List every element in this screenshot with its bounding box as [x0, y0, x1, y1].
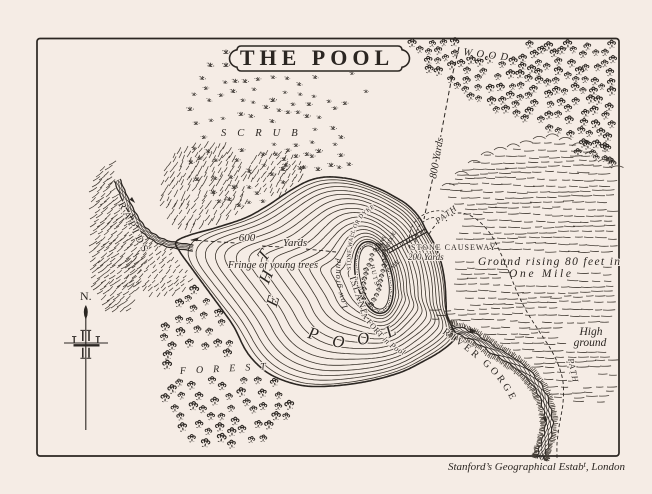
- svg-text:SCRUB: SCRUB: [221, 128, 309, 139]
- svg-text:Fringe of young trees: Fringe of young trees: [227, 260, 318, 271]
- svg-text:THE POOL: THE POOL: [240, 45, 394, 70]
- svg-text:STONE CAUSEWAY: STONE CAUSEWAY: [411, 243, 496, 252]
- svg-text:N.: N.: [80, 289, 92, 303]
- svg-text:600: 600: [239, 232, 256, 244]
- svg-text:ground: ground: [574, 337, 607, 349]
- svg-text:Ground rising 80 feet in: Ground rising 80 feet in: [478, 256, 620, 268]
- svg-text:O: O: [332, 332, 346, 352]
- svg-text:Stanford’s Geographical Estabt: Stanford’s Geographical Estabt, London: [448, 460, 626, 473]
- svg-text:200 Yards: 200 Yards: [408, 252, 444, 262]
- svg-text:Yards: Yards: [283, 237, 307, 249]
